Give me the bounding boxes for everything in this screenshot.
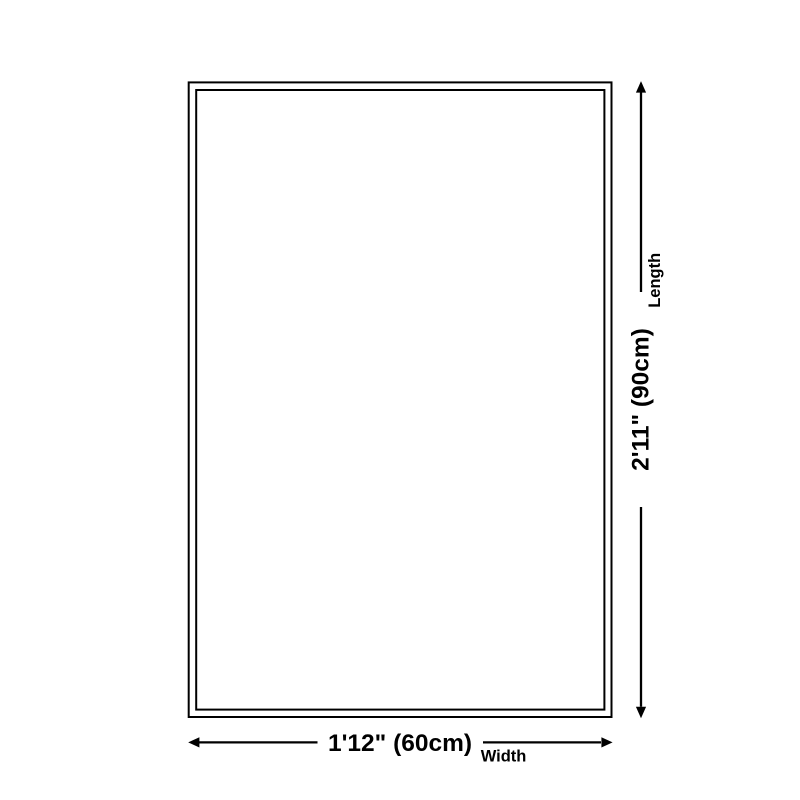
svg-text:Length: Length <box>646 253 664 308</box>
svg-text:1'12" (60cm): 1'12" (60cm) <box>328 730 472 757</box>
svg-text:2'11" (90cm): 2'11" (90cm) <box>627 328 654 471</box>
svg-text:Width: Width <box>481 747 527 765</box>
